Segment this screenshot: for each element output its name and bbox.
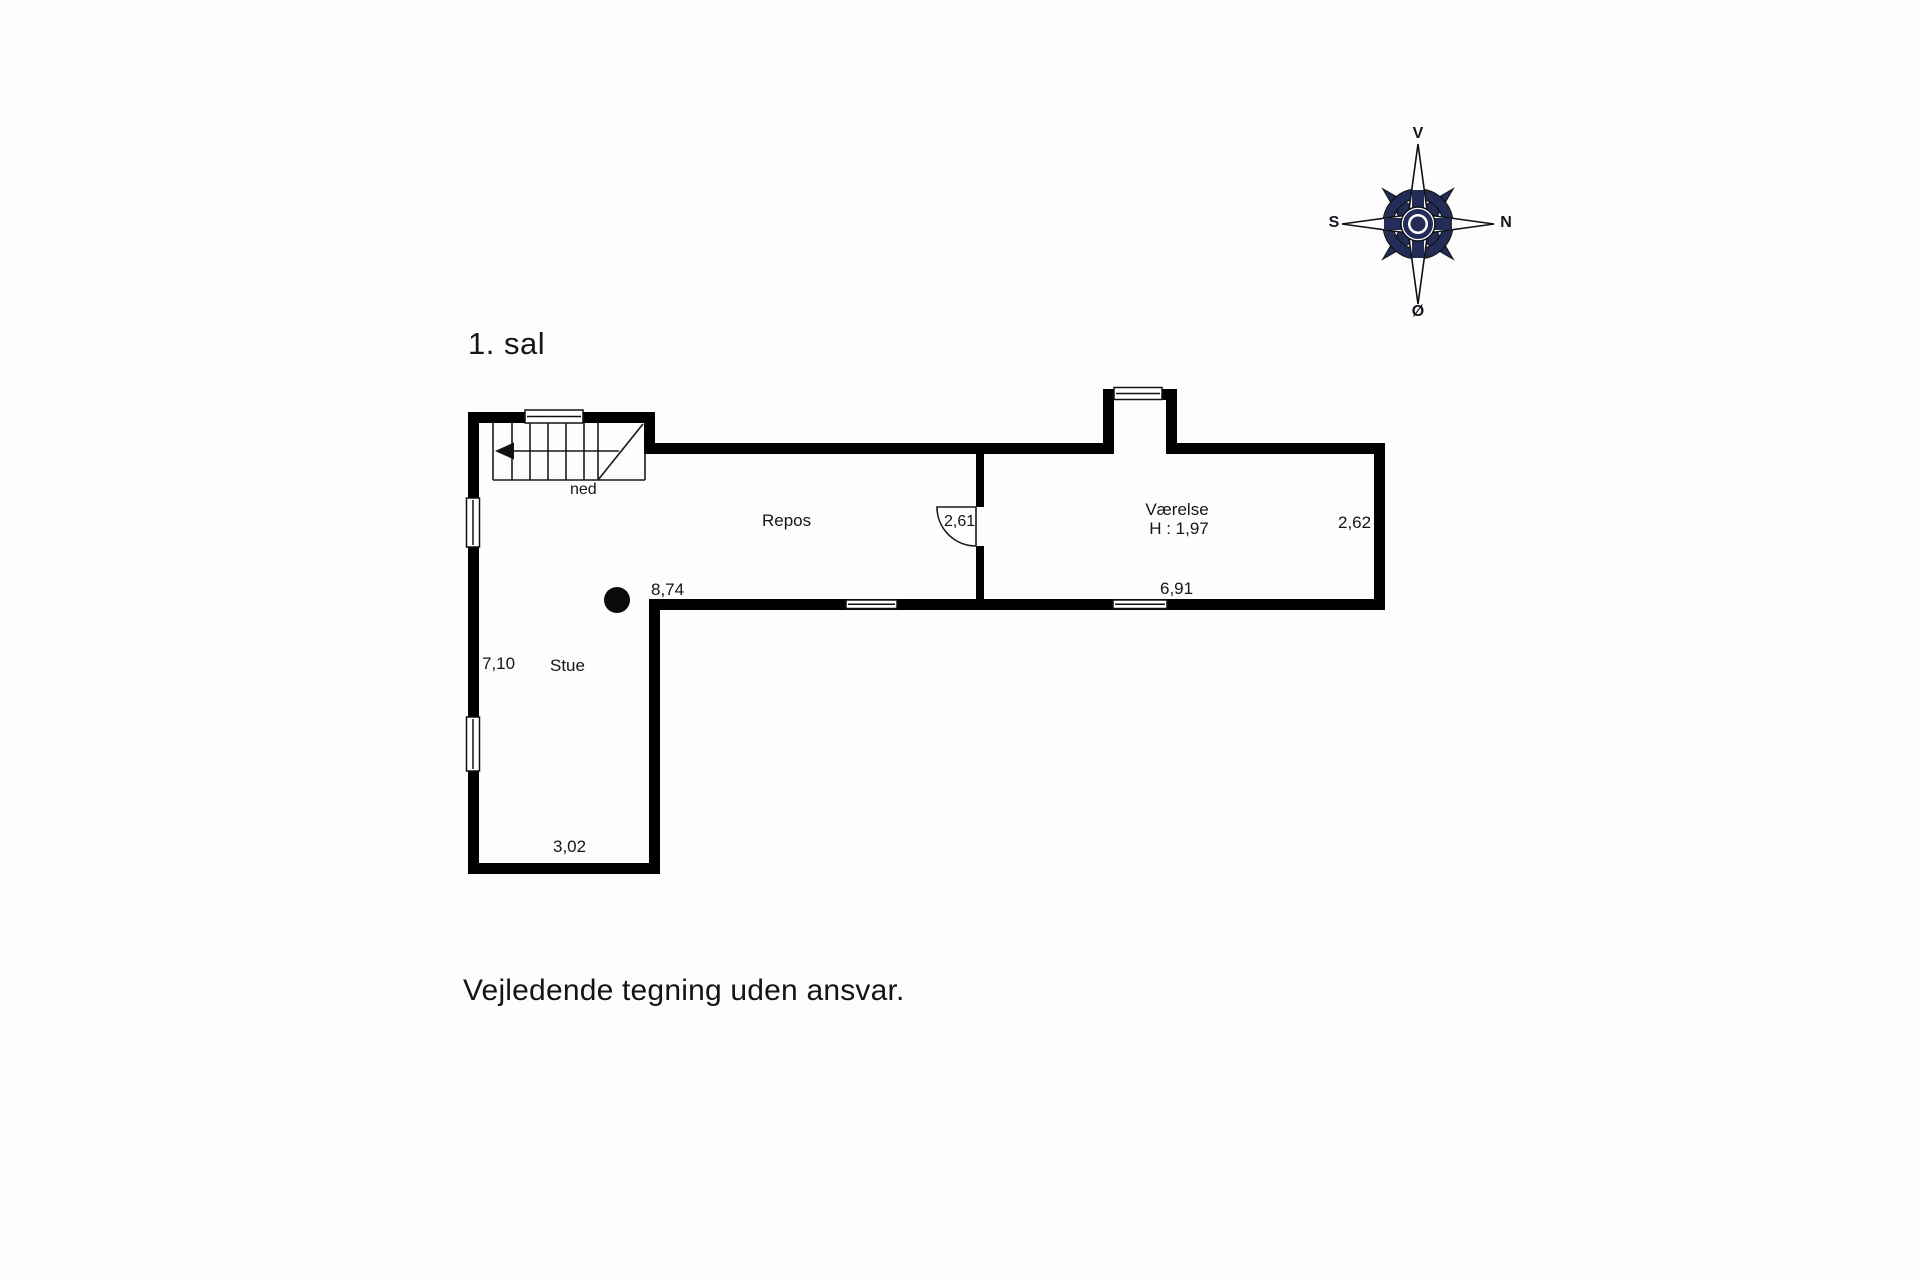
ceiling-height-label: H : 1,97 (1149, 520, 1209, 537)
page-title: 1. sal (468, 326, 545, 362)
window-icon (467, 498, 480, 547)
dimension-stue-width: 3,02 (553, 838, 586, 855)
stairs-label-ned: ned (570, 482, 597, 498)
wall-top-vaerelse (1177, 443, 1385, 454)
wall-top-repos (644, 443, 1103, 454)
dimension-vaerelse-depth: 2,62 (1338, 514, 1371, 531)
dimension-vaerelse-width: 6,91 (1160, 580, 1193, 597)
room-label-repos: Repos (762, 512, 811, 529)
wall-stue-right (649, 599, 660, 874)
compass-label-s: S (1329, 215, 1340, 231)
room-label-stue: Stue (550, 657, 585, 674)
stairs-direction-arrow (495, 443, 514, 460)
chimney-circle (604, 587, 630, 613)
wall-niche-right (1166, 389, 1177, 454)
floor-plan-drawing (0, 0, 1920, 1279)
wall-stue-bottom (468, 863, 660, 874)
window-icon (846, 600, 897, 609)
compass-label-v: V (1413, 126, 1424, 142)
wall-bottom-east (649, 599, 1385, 610)
dimension-repos-door: 2,61 (944, 514, 975, 530)
compass-hub (1401, 207, 1435, 241)
wall-left (468, 412, 479, 874)
compass-rose-icon (1318, 140, 1518, 310)
dimension-stue-depth: 7,10 (482, 655, 515, 672)
staircase (493, 423, 645, 480)
disclaimer-text: Vejledende tegning uden ansvar. (463, 974, 905, 1008)
walls (468, 389, 1385, 874)
window-icon (525, 410, 583, 423)
wall-divider-upper (976, 454, 984, 507)
room-label-vaerelse: Værelse (1145, 501, 1208, 518)
window-icon (1114, 388, 1162, 400)
window-icon (467, 717, 480, 771)
wall-right (1374, 443, 1385, 610)
compass-label-oe: Ø (1412, 304, 1424, 320)
window-icon (1113, 600, 1167, 609)
compass-label-n: N (1500, 215, 1512, 231)
stairs-cut-line (598, 424, 643, 480)
dimension-repos-width: 8,74 (651, 581, 684, 598)
wall-divider-lower (976, 546, 984, 600)
